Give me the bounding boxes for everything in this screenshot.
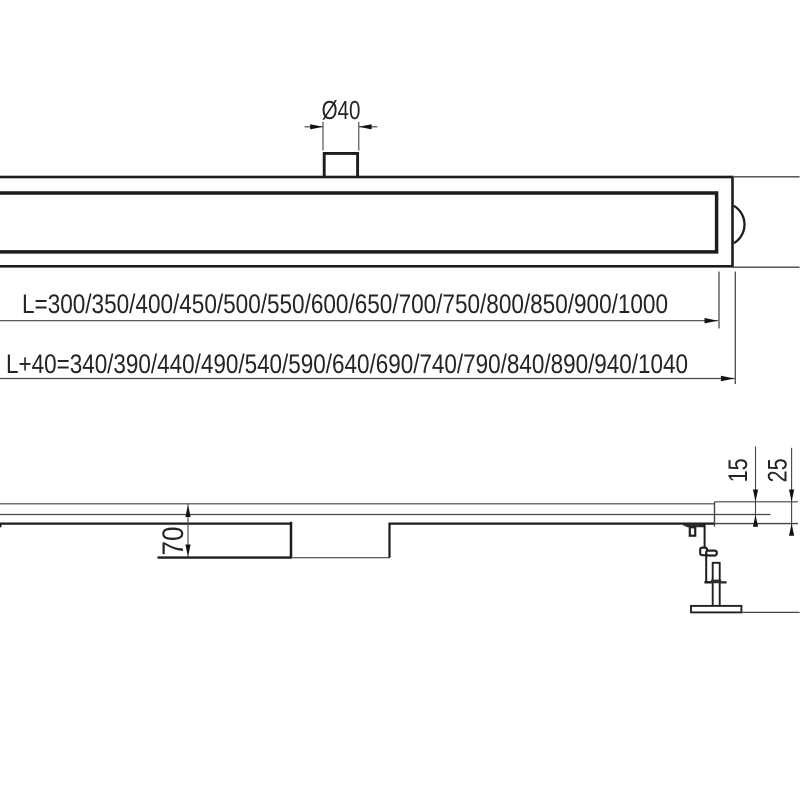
svg-text:L=300/350/400/450/500/550/600/: L=300/350/400/450/500/550/600/650/700/75… bbox=[22, 289, 668, 319]
svg-text:15: 15 bbox=[723, 458, 753, 482]
svg-text:L+40=340/390/440/490/540/590/6: L+40=340/390/440/490/540/590/640/690/740… bbox=[6, 349, 688, 379]
svg-text:Ø40: Ø40 bbox=[322, 95, 361, 125]
svg-text:25: 25 bbox=[763, 458, 793, 482]
svg-text:70: 70 bbox=[157, 527, 190, 556]
